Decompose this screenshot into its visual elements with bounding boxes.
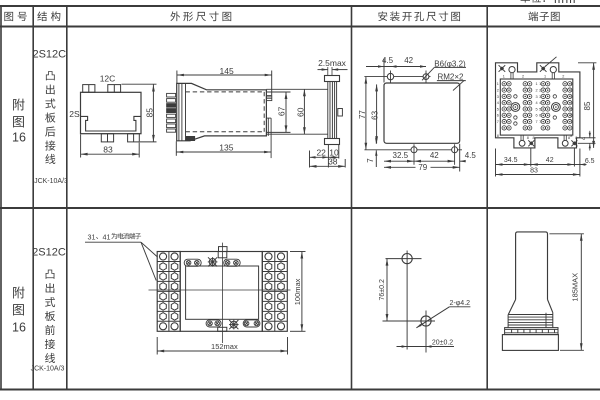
svg-text:4: 4: [570, 101, 572, 105]
svg-text:3: 3: [497, 95, 499, 99]
svg-text:2: 2: [536, 89, 538, 93]
svg-text:85: 85: [144, 108, 154, 118]
svg-text:135: 135: [219, 142, 233, 152]
svg-text:60: 60: [296, 107, 306, 117]
svg-text:2: 2: [497, 89, 499, 93]
svg-text:2: 2: [562, 75, 564, 79]
svg-text:16: 16: [12, 321, 26, 335]
svg-text:42: 42: [404, 56, 413, 65]
svg-text:3: 3: [570, 95, 572, 99]
svg-text:8: 8: [570, 134, 572, 138]
svg-text:185MAX: 185MAX: [571, 273, 580, 302]
svg-text:7: 7: [536, 120, 538, 124]
svg-text:76±0.2: 76±0.2: [379, 279, 386, 300]
svg-text:4: 4: [536, 101, 538, 105]
svg-text:1: 1: [503, 75, 505, 79]
svg-text:4.5: 4.5: [465, 151, 477, 160]
svg-text:8: 8: [568, 136, 570, 140]
svg-text:5: 5: [570, 107, 572, 111]
svg-text:79: 79: [418, 163, 427, 172]
svg-text:8: 8: [575, 136, 577, 140]
svg-text:7: 7: [497, 120, 499, 124]
svg-text:2-φ4.2: 2-φ4.2: [450, 300, 471, 307]
svg-text:41: 41: [103, 232, 111, 241]
svg-text:6: 6: [539, 114, 541, 118]
svg-text:67: 67: [277, 106, 287, 116]
svg-text:100max: 100max: [293, 278, 302, 305]
svg-text:3: 3: [536, 95, 538, 99]
svg-text:1: 1: [539, 82, 541, 86]
svg-text:6: 6: [497, 114, 499, 118]
svg-text:8: 8: [497, 134, 499, 138]
svg-text:2S12C: 2S12C: [32, 247, 66, 259]
svg-text:8: 8: [527, 136, 529, 140]
svg-text:34.5: 34.5: [504, 157, 518, 164]
svg-text:1: 1: [536, 82, 538, 86]
svg-text:22: 22: [316, 148, 326, 158]
svg-text:4: 4: [497, 101, 499, 105]
svg-text:12C: 12C: [100, 73, 116, 83]
svg-text:38: 38: [328, 157, 338, 167]
svg-text:42: 42: [546, 157, 554, 164]
svg-text:83: 83: [530, 168, 538, 175]
svg-text:16: 16: [12, 131, 26, 145]
svg-text:83: 83: [103, 145, 113, 155]
svg-text:5: 5: [497, 107, 499, 111]
svg-text:152max: 152max: [211, 342, 238, 351]
svg-text:1: 1: [497, 82, 499, 86]
svg-text:3: 3: [539, 95, 541, 99]
svg-text:7: 7: [570, 120, 572, 124]
svg-text:5: 5: [539, 107, 541, 111]
svg-text:4: 4: [539, 101, 541, 105]
svg-text:mm: mm: [554, 0, 577, 6]
svg-text:2: 2: [539, 89, 541, 93]
svg-text:20±0.2: 20±0.2: [432, 340, 453, 347]
svg-text:2.5max: 2.5max: [318, 58, 347, 68]
svg-text:6: 6: [536, 114, 538, 118]
svg-text:5: 5: [536, 107, 538, 111]
svg-text:2: 2: [570, 89, 572, 93]
svg-text:JCK-10A/3: JCK-10A/3: [31, 366, 65, 373]
svg-text:7: 7: [366, 158, 375, 163]
svg-text:RM2×2: RM2×2: [437, 72, 464, 81]
svg-text:31: 31: [88, 232, 96, 241]
svg-text:1: 1: [570, 82, 572, 86]
svg-text:4.5: 4.5: [382, 56, 394, 65]
svg-text:2: 2: [522, 75, 524, 79]
svg-text:2S: 2S: [69, 109, 80, 119]
svg-text:77: 77: [358, 110, 367, 119]
svg-text:6.5: 6.5: [585, 158, 595, 165]
svg-text:7: 7: [539, 120, 541, 124]
svg-text:145: 145: [220, 66, 234, 76]
svg-text:63: 63: [370, 110, 379, 119]
svg-text:32.5: 32.5: [393, 151, 409, 160]
svg-text:6: 6: [570, 114, 572, 118]
svg-text:1: 1: [544, 75, 546, 79]
svg-text:42: 42: [430, 151, 439, 160]
svg-text:JCK-10A/3: JCK-10A/3: [34, 178, 68, 185]
svg-text:85: 85: [583, 101, 592, 110]
svg-text:2S12C: 2S12C: [32, 49, 66, 61]
svg-text:8: 8: [533, 136, 535, 140]
